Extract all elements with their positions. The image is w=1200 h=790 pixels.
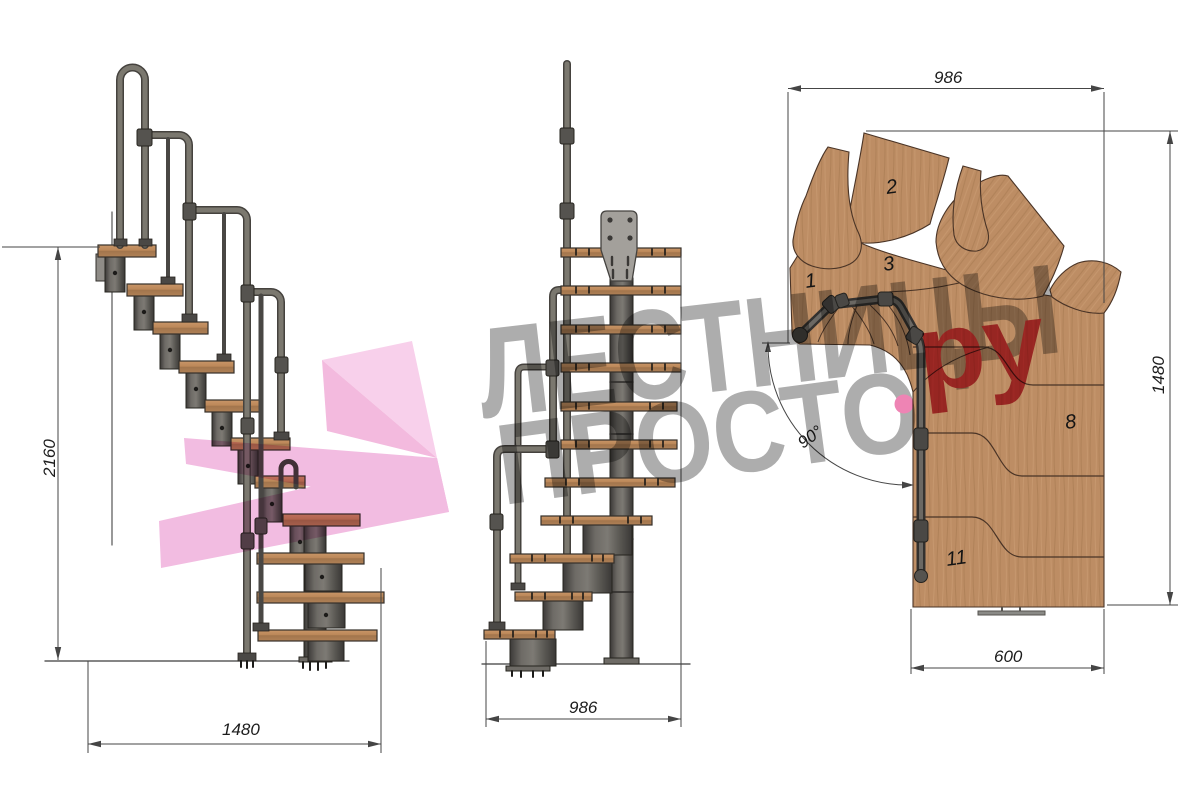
svg-text:986: 986 xyxy=(569,698,598,717)
svg-text:ру: ру xyxy=(910,278,1052,416)
svg-text:2160: 2160 xyxy=(40,439,59,478)
svg-text:11: 11 xyxy=(945,546,969,571)
svg-text:986: 986 xyxy=(934,68,963,87)
svg-text:1480: 1480 xyxy=(1149,356,1168,394)
svg-text:600: 600 xyxy=(994,647,1023,666)
svg-text:1480: 1480 xyxy=(222,720,260,739)
